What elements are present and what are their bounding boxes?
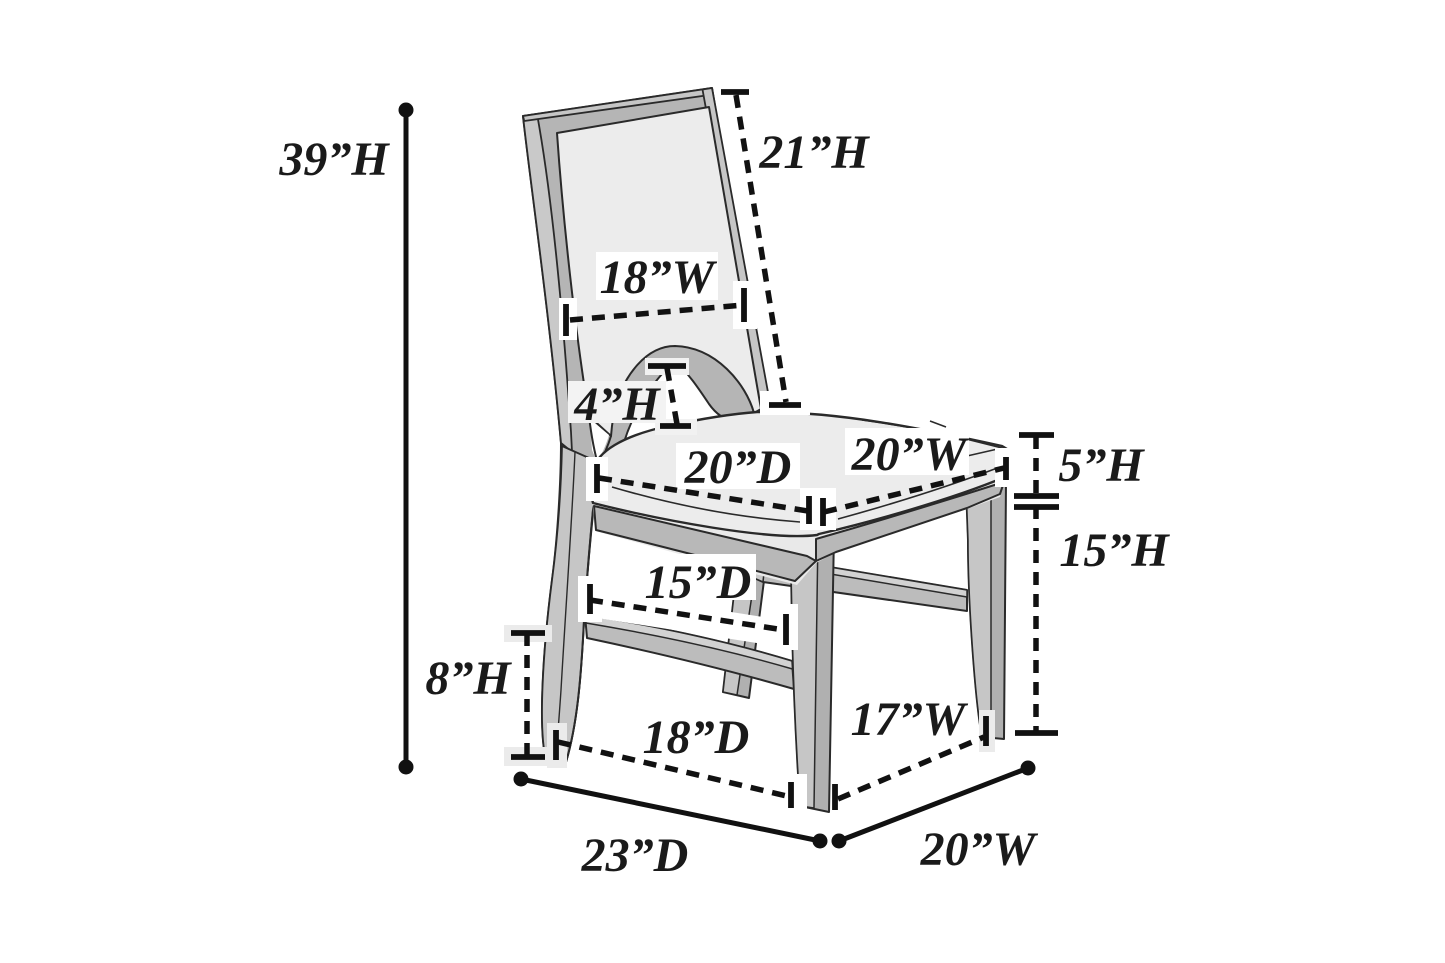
svg-text:39”H: 39”H — [278, 133, 390, 186]
svg-text:15”H: 15”H — [1059, 524, 1170, 577]
svg-text:4”H: 4”H — [573, 378, 661, 431]
svg-text:15”D: 15”D — [645, 556, 752, 609]
svg-text:18”W: 18”W — [600, 251, 718, 304]
svg-text:5”H: 5”H — [1058, 439, 1145, 492]
svg-text:20”D: 20”D — [684, 441, 792, 494]
svg-text:8”H: 8”H — [425, 652, 512, 705]
svg-text:20”W: 20”W — [920, 823, 1039, 876]
svg-text:21”H: 21”H — [758, 126, 870, 179]
svg-text:18”D: 18”D — [643, 711, 750, 764]
svg-text:20”W: 20”W — [851, 428, 970, 481]
svg-text:23”D: 23”D — [581, 829, 689, 882]
svg-text:17”W: 17”W — [851, 693, 969, 746]
